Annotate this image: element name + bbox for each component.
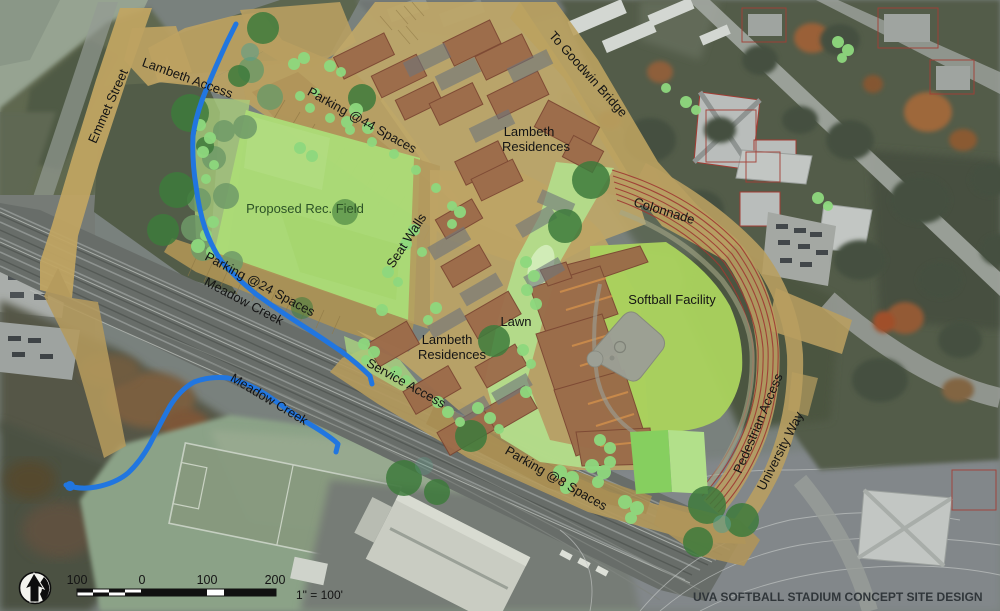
svg-text:Lambeth: Lambeth bbox=[422, 332, 473, 347]
svg-text:Proposed Rec. Field: Proposed Rec. Field bbox=[246, 201, 364, 216]
svg-text:0: 0 bbox=[139, 573, 146, 587]
svg-text:1" = 100': 1" = 100' bbox=[296, 588, 343, 602]
svg-text:100: 100 bbox=[197, 573, 218, 587]
svg-text:200: 200 bbox=[265, 573, 286, 587]
svg-text:Residences: Residences bbox=[502, 139, 570, 154]
svg-text:100: 100 bbox=[67, 573, 88, 587]
svg-text:Residences: Residences bbox=[418, 347, 486, 362]
svg-text:Lawn: Lawn bbox=[500, 314, 531, 329]
svg-text:Lambeth: Lambeth bbox=[504, 124, 555, 139]
svg-text:UVA SOFTBALL STADIUM CONCEPT S: UVA SOFTBALL STADIUM CONCEPT SITE DESIGN bbox=[693, 590, 983, 604]
svg-text:Softball Facility: Softball Facility bbox=[628, 292, 716, 307]
